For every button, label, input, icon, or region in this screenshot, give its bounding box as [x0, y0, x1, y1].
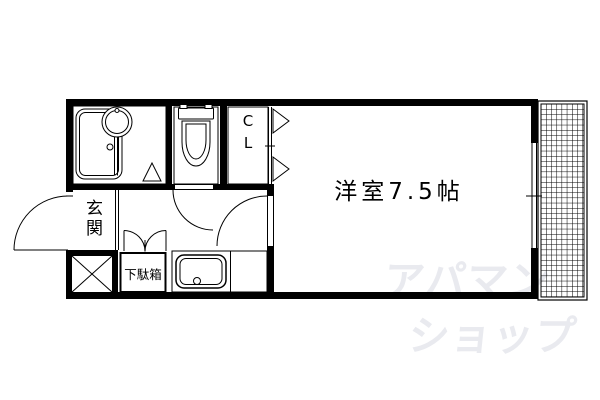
balcony-hatch-icon [541, 104, 584, 297]
toilet-door-icon [173, 184, 213, 230]
entrance-door-icon [14, 196, 73, 250]
toilet-room [173, 105, 218, 231]
entrance-label: 玄関 [80, 199, 105, 239]
closet-folding-door-icon [273, 109, 289, 181]
bath-door-triangle-icon [143, 163, 161, 181]
window-icon [526, 143, 542, 248]
toilet-icon [179, 105, 214, 167]
closet-label: CL [239, 112, 257, 156]
utility-cross-box-icon [66, 250, 118, 298]
washbasin-icon [102, 107, 132, 176]
shoe-cabinet-label: 下駄箱 [120, 264, 166, 283]
floorplan-canvas: アパマン ショップ [0, 0, 600, 400]
main-room-label: 洋室7.5帖 [298, 172, 500, 206]
kitchen-sink-icon [176, 255, 226, 288]
room-door-icon [217, 196, 274, 246]
balcony [538, 101, 587, 300]
kitchen-counter [172, 251, 267, 292]
folding-doors-icon [124, 231, 166, 252]
bathroom [73, 106, 166, 184]
closet [228, 107, 289, 184]
entrance-step-line [116, 190, 119, 250]
drain-icon [107, 144, 113, 150]
